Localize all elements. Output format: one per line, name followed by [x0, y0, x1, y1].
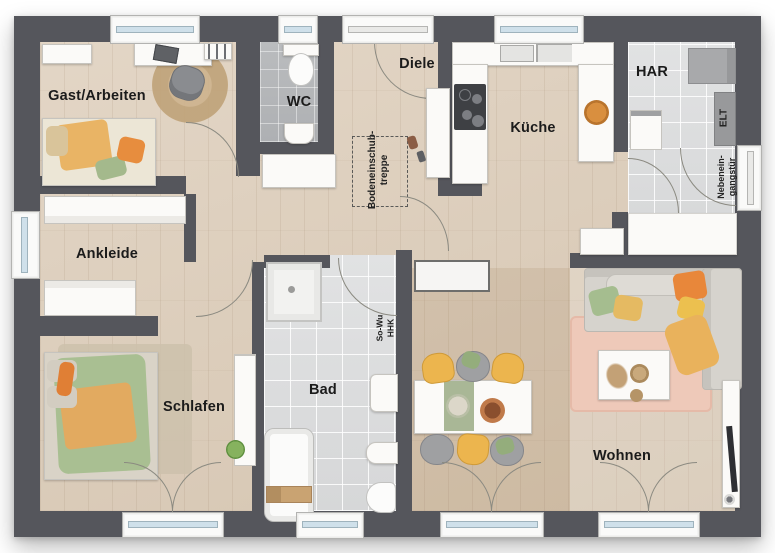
wc-basin	[284, 123, 314, 144]
so-wu-line2: HHK	[385, 319, 395, 337]
wall	[612, 42, 628, 152]
washer	[630, 110, 662, 150]
so-wu-label: So-Wu HHK	[374, 315, 395, 342]
bath-caddy	[266, 486, 312, 503]
bookshelf	[204, 43, 232, 60]
table-vase	[630, 364, 649, 383]
room-label-har: HAR	[636, 64, 668, 80]
wall	[236, 42, 260, 176]
side-entrance-door	[737, 145, 762, 211]
shower	[266, 262, 322, 322]
table-bowl	[480, 398, 505, 423]
wall-shelf	[42, 44, 92, 64]
window-glass	[116, 26, 194, 33]
room-label-gast: Gast/Arbeiten	[48, 88, 146, 104]
so-wu-line1: So-Wu	[374, 315, 384, 342]
cooktop-burner	[459, 89, 471, 101]
shower-drain	[288, 286, 295, 293]
bathtub	[264, 428, 314, 522]
room-label-schlafen: Schlafen	[163, 399, 225, 415]
sofa-pillow-yellow	[612, 294, 643, 322]
side-entrance-line1: Nebenein-	[716, 155, 726, 199]
kitchen-sink	[500, 45, 534, 62]
window-glass	[500, 26, 578, 33]
washbasin	[370, 374, 398, 412]
floorplan-canvas: Gast/Arbeiten WC Bodeneinschub- treppe D…	[0, 0, 775, 553]
room-label-bad: Bad	[309, 382, 337, 398]
side-door-panel	[747, 151, 754, 205]
door-glass	[128, 521, 218, 528]
attic-stairs-line1: Bodeneinschub-	[367, 131, 378, 209]
room-label-diele: Diele	[399, 56, 435, 72]
wardrobe-bottom	[44, 280, 136, 316]
door-glass	[604, 521, 694, 528]
window-glass	[284, 26, 312, 33]
wall	[40, 316, 158, 336]
daybed-pillow-sand	[46, 126, 68, 156]
niche-cabinet	[580, 228, 624, 255]
window-glass	[302, 521, 358, 528]
room-label-ankleide: Ankleide	[76, 246, 138, 262]
window-ankleide	[11, 211, 40, 279]
chair-gray	[420, 434, 454, 465]
room-label-wc: WC	[287, 94, 312, 110]
wall	[570, 253, 735, 268]
door-glass	[446, 521, 538, 528]
daybed-pillow-orange	[116, 136, 146, 165]
window-kueche	[494, 15, 584, 44]
side-entrance-line2: gangstür	[727, 158, 737, 197]
fruit-bowl	[584, 100, 609, 125]
hall-sideboard	[426, 88, 450, 178]
french-door-wohnen	[598, 512, 700, 538]
toilet-bowl	[288, 53, 314, 86]
plant	[226, 440, 245, 459]
wall	[396, 250, 412, 511]
side-entrance-label: Nebenein- gangstür	[716, 155, 738, 199]
window-wc	[278, 15, 318, 44]
toilet	[366, 482, 396, 513]
attic-stairs-line2: treppe	[379, 155, 390, 186]
table-flowers	[446, 394, 470, 418]
window-gast	[110, 15, 200, 44]
speaker	[724, 494, 735, 505]
elt-label: ELT	[719, 109, 730, 127]
bidet	[366, 442, 398, 464]
dining-sideboard	[414, 260, 490, 292]
attic-stairs-label: Bodeneinschub- treppe	[367, 131, 391, 209]
front-door-glass	[348, 26, 428, 33]
french-door-essen	[440, 512, 544, 538]
har-appliance	[688, 48, 736, 84]
wardrobe-top	[44, 196, 186, 224]
window-bad	[296, 512, 364, 539]
har-cabinet	[628, 213, 737, 255]
french-door-schlafen	[122, 512, 224, 538]
wall	[318, 42, 334, 150]
window-glass	[21, 217, 28, 273]
front-door	[342, 15, 434, 44]
room-label-kueche: Küche	[510, 120, 555, 136]
hall-cabinet	[262, 154, 336, 188]
